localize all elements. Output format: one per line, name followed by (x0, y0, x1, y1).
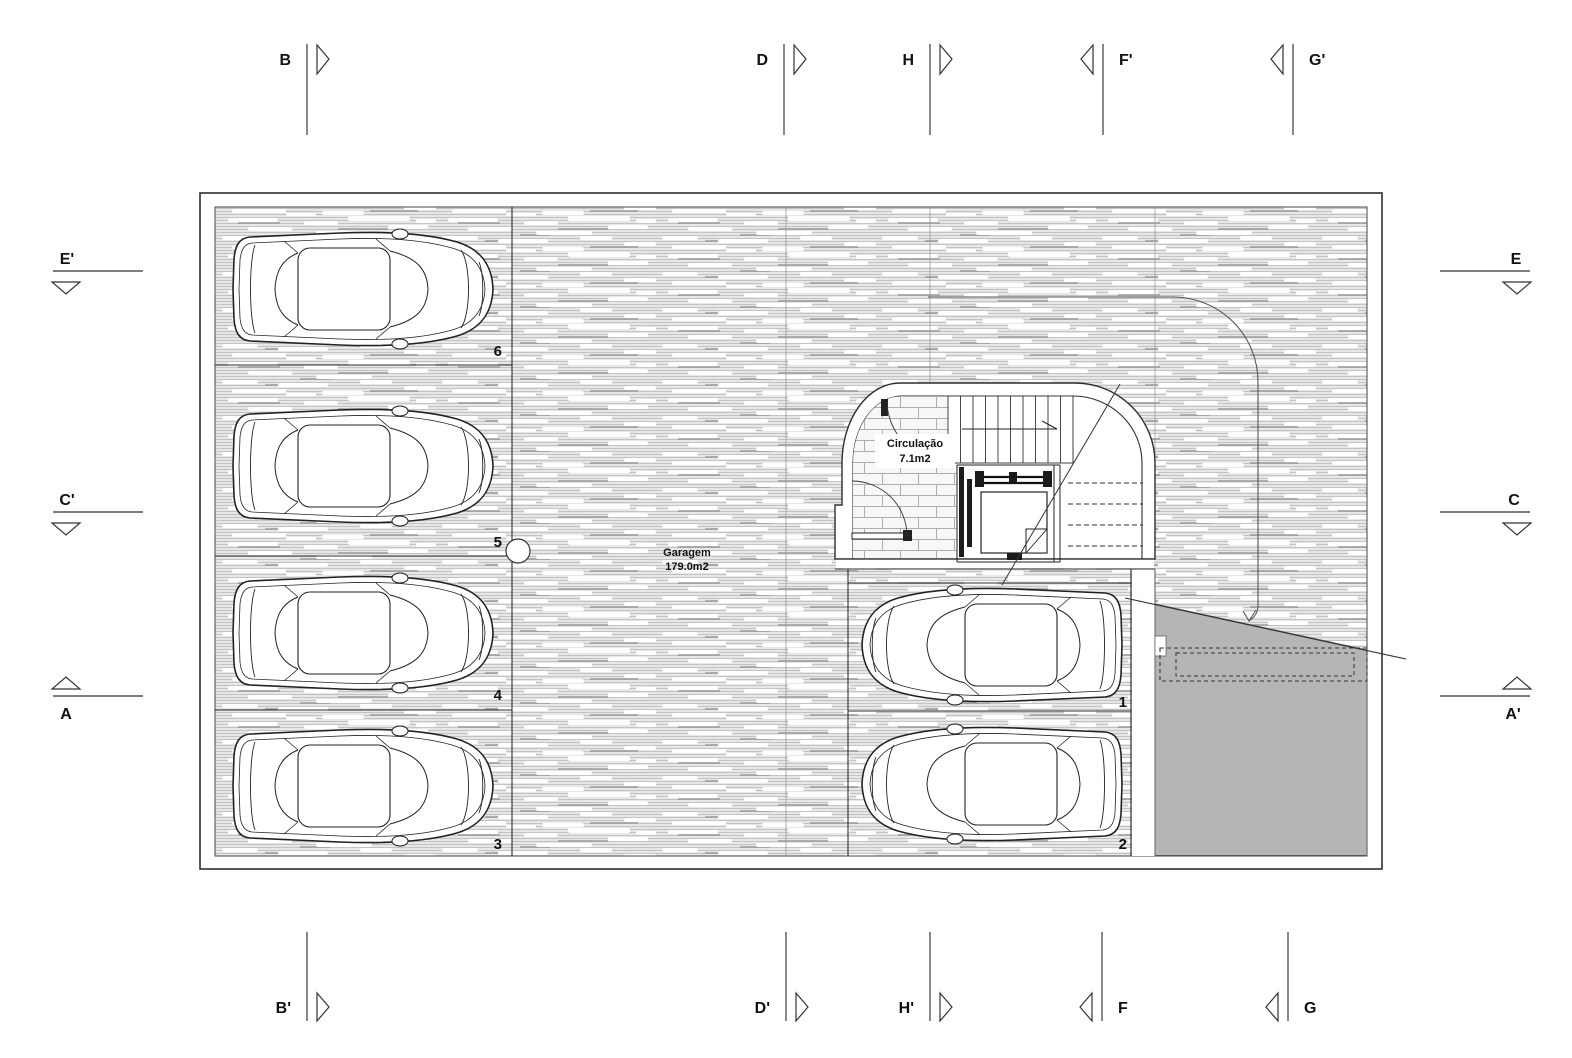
garage-area: 179.0m2 (665, 561, 708, 573)
section-marker-D2: D' (755, 932, 808, 1021)
section-arrow-icon (1503, 282, 1531, 294)
svg-text:E': E' (60, 251, 74, 268)
section-arrow-icon (317, 45, 329, 74)
section-marker-H2: H' (899, 932, 952, 1021)
svg-text:H: H (902, 52, 914, 69)
stall-number-5: 5 (494, 534, 502, 551)
svg-text:G': G' (1309, 52, 1325, 69)
column-circle (506, 539, 530, 563)
section-arrow-icon (1081, 45, 1093, 74)
staircase (948, 396, 1073, 463)
section-marker-A: A (52, 677, 143, 723)
svg-text:D: D (756, 52, 768, 69)
svg-text:D': D' (755, 1000, 770, 1017)
car-stall-4 (233, 573, 493, 693)
svg-text:A': A' (1505, 706, 1520, 723)
section-arrow-icon (940, 45, 952, 74)
section-arrow-icon (52, 523, 80, 535)
elevator-guide-rail (959, 467, 964, 557)
section-arrow-icon (317, 993, 329, 1021)
car-stall-5 (233, 406, 493, 526)
svg-text:C: C (1508, 492, 1520, 509)
svg-text:F: F (1118, 1000, 1128, 1017)
svg-text:G: G (1304, 1000, 1316, 1017)
section-arrow-icon (940, 993, 952, 1021)
circulation-name: Circulação (887, 438, 944, 450)
elevator-guide-rail (967, 479, 972, 547)
section-arrow-icon (796, 993, 808, 1021)
stall-number-4: 4 (494, 687, 503, 704)
section-arrow-icon (52, 677, 80, 689)
stall-number-6: 6 (494, 343, 502, 360)
section-arrow-icon (794, 45, 806, 74)
section-marker-A2: A' (1440, 677, 1531, 723)
section-marker-F: F (1080, 932, 1128, 1021)
floor-plan-page: 6 5 4 3 1 2 Garagem 179.0m2 (0, 0, 1572, 1058)
section-marker-B: B (279, 44, 329, 135)
svg-text:B: B (279, 52, 291, 69)
door-leaf-bottom (852, 533, 905, 539)
section-arrow-icon (1503, 677, 1531, 689)
section-arrow-icon (1080, 993, 1092, 1021)
door-jamb-bottom (903, 530, 912, 541)
section-marker-C: C (1440, 492, 1531, 535)
section-marker-D: D (756, 44, 806, 135)
section-marker-G2: G' (1271, 44, 1325, 135)
svg-text:A: A (60, 706, 72, 723)
garage-plan: 6 5 4 3 1 2 Garagem 179.0m2 (200, 193, 1406, 869)
car-stall-1 (862, 585, 1122, 705)
ramp-notch (1155, 636, 1166, 656)
section-marker-E2: E' (52, 251, 143, 294)
section-arrow-icon (1266, 993, 1278, 1021)
section-marker-F2: F' (1081, 44, 1133, 135)
stall-number-2: 2 (1119, 836, 1127, 853)
car-stall-2 (862, 724, 1122, 844)
section-marker-B2: B' (276, 932, 329, 1021)
section-marker-C2: C' (52, 492, 143, 535)
floor-plan-drawing: 6 5 4 3 1 2 Garagem 179.0m2 (0, 0, 1572, 1058)
garage-name: Garagem (663, 547, 711, 559)
svg-text:C': C' (59, 492, 74, 509)
car-stall-6 (233, 229, 493, 349)
stall-number-1: 1 (1119, 694, 1127, 711)
section-arrow-icon (1503, 523, 1531, 535)
section-marker-H: H (902, 44, 952, 135)
circulation-area: 7.1m2 (899, 453, 930, 465)
svg-text:F': F' (1119, 52, 1133, 69)
section-marker-E: E (1440, 251, 1531, 294)
stall-number-3: 3 (494, 836, 502, 853)
section-marker-G: G (1266, 932, 1316, 1021)
ramp-side-wall (1132, 569, 1155, 856)
svg-text:E: E (1511, 251, 1522, 268)
section-arrow-icon (52, 282, 80, 294)
svg-text:H': H' (899, 1000, 914, 1017)
svg-text:B': B' (276, 1000, 291, 1017)
car-stall-3 (233, 726, 493, 846)
stair-core: Circulação 7.1m2 (835, 383, 1155, 585)
section-arrow-icon (1271, 45, 1283, 74)
